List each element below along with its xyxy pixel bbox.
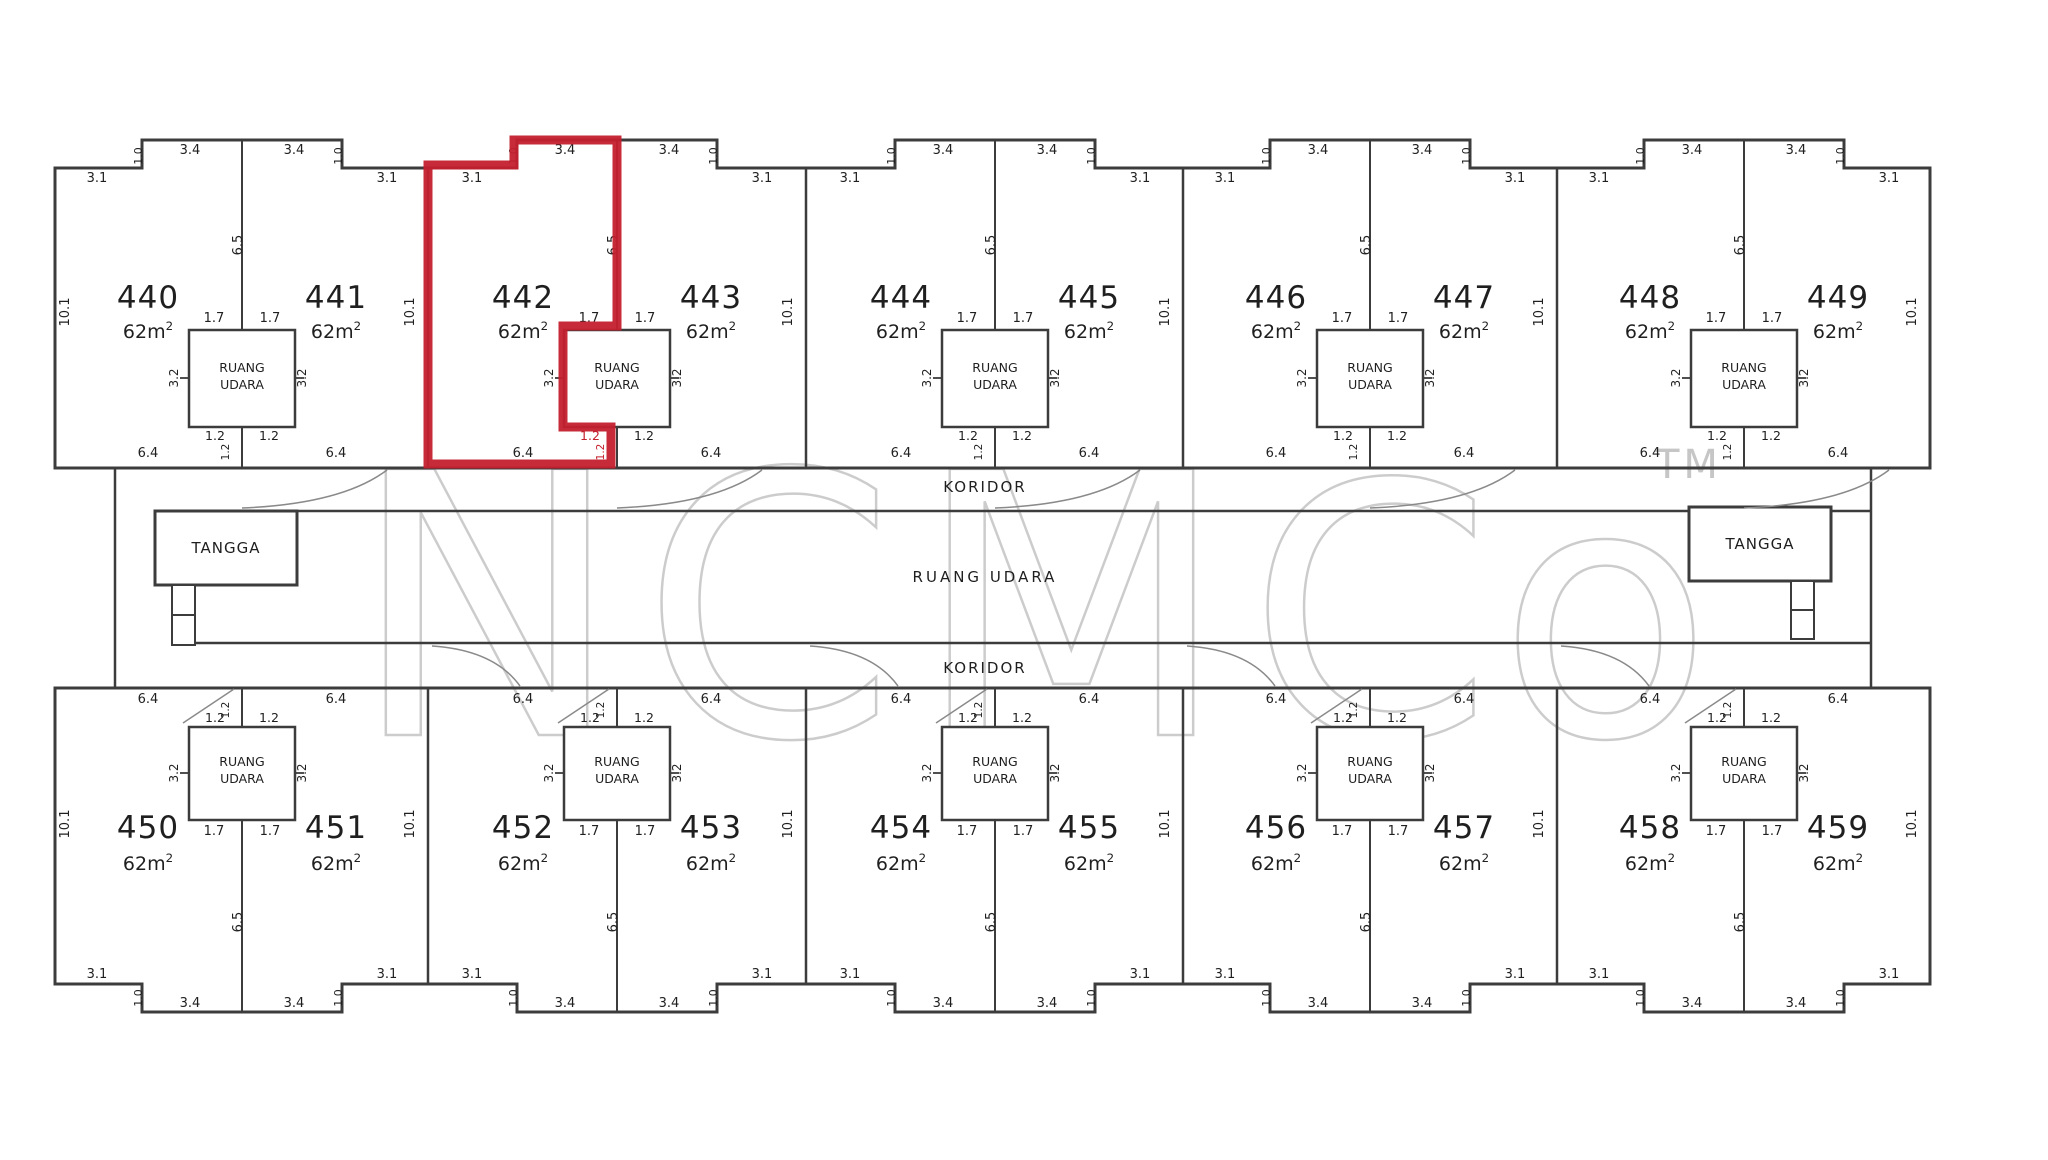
dim-label: 3.4 (933, 996, 954, 1011)
dim-unit-depth: 10.1 (1905, 298, 1920, 327)
watermark-tm: TM (1654, 442, 1722, 488)
dim-label: 1.7 (957, 311, 978, 326)
dim-label: 3.1 (1505, 967, 1526, 982)
dim-label: 3.1 (377, 171, 398, 186)
unit-number-445: 445 (1058, 280, 1120, 316)
dim-label: 6.4 (1640, 446, 1661, 461)
dim-label: 3.4 (1037, 143, 1058, 158)
ruang-udara-box-label: RUANG (594, 754, 639, 769)
dim-label: 1.0 (1460, 147, 1473, 165)
unit-area-456: 62m2 (1251, 851, 1301, 875)
dim-label: 1.0 (332, 147, 345, 165)
dim-label: 6.4 (513, 692, 534, 707)
dim-label: 3.1 (87, 967, 108, 982)
dim-label: 3.1 (1130, 967, 1151, 982)
dim-label: 3.4 (1412, 996, 1433, 1011)
dim-label: 1.7 (1706, 824, 1727, 839)
unit-number-458: 458 (1619, 810, 1681, 846)
dim-label: 1.0 (332, 989, 345, 1007)
dim-label: 3.4 (659, 143, 680, 158)
dim-label: 1.0 (1460, 989, 1473, 1007)
dim-label: 3.4 (1682, 996, 1703, 1011)
dim-label: 3.2 (1797, 763, 1811, 782)
ruang-udara-box-label: UDARA (595, 377, 639, 392)
dim-label: 3.1 (377, 967, 398, 982)
ruang-udara-box-label: UDARA (595, 771, 639, 786)
dim-label: 1.2 (1348, 444, 1360, 461)
dim-label: 3.1 (1505, 171, 1526, 186)
dim-unit-depth: 10.1 (403, 298, 418, 327)
dim-label: 1.0 (707, 989, 720, 1007)
dim-label: 1.0 (1260, 147, 1273, 165)
dim-label: 6.5 (984, 235, 999, 256)
dim-label: 6.5 (1733, 235, 1748, 256)
unit-number-451: 451 (305, 810, 367, 846)
floor-plan-page: NCMCoTM10.110.110.110.110.110.110.110.11… (0, 0, 2048, 1160)
dim-label: 3.2 (1295, 368, 1309, 387)
dim-label: 6.5 (984, 912, 999, 933)
unit-area-455: 62m2 (1064, 851, 1114, 875)
dim-label: 3.2 (1048, 763, 1062, 782)
dim-label: 6.4 (1266, 692, 1287, 707)
unit-area-459: 62m2 (1813, 851, 1863, 875)
dim-label: 3.1 (462, 171, 483, 186)
dim-label: 1.0 (1834, 147, 1847, 165)
unit-number-455: 455 (1058, 810, 1120, 846)
dim-label: 1.2 (1012, 428, 1032, 443)
dim-label: 1.0 (1260, 989, 1273, 1007)
dim-label: 1.7 (1706, 311, 1727, 326)
unit-number-453: 453 (680, 810, 742, 846)
dim-label: 3.2 (920, 763, 934, 782)
dim-label: 1.7 (1332, 824, 1353, 839)
unit-number-454: 454 (870, 810, 932, 846)
dim-label: 3.4 (555, 143, 576, 158)
dim-label: 3.2 (542, 763, 556, 782)
unit-area-452: 62m2 (498, 851, 548, 875)
dim-label: 3.2 (1423, 368, 1437, 387)
dim-label: 3.2 (295, 763, 309, 782)
unit-area-453: 62m2 (686, 851, 736, 875)
ruang-udara-box-label: UDARA (973, 771, 1017, 786)
dim-label: 1.7 (1388, 311, 1409, 326)
unit-number-443: 443 (680, 280, 742, 316)
ruang-udara-box-label: UDARA (220, 377, 264, 392)
dim-label: 1.7 (1762, 311, 1783, 326)
dim-label: 3.2 (670, 763, 684, 782)
dim-label: 6.4 (513, 446, 534, 461)
dim-label: 3.4 (1786, 143, 1807, 158)
dim-label: 3.4 (555, 996, 576, 1011)
dim-label: 3.2 (920, 368, 934, 387)
dim-label: 1.2 (1387, 710, 1407, 725)
dim-label: 1.2 (958, 428, 978, 443)
dim-label: 3.2 (1669, 368, 1683, 387)
dim-label: 1.2 (1333, 710, 1353, 725)
dim-label: 1.0 (1834, 989, 1847, 1007)
dim-label: 3.1 (1215, 171, 1236, 186)
dim-label: 3.2 (1295, 763, 1309, 782)
dim-label: 1.2 (1722, 444, 1734, 461)
dim-label: 3.4 (1682, 143, 1703, 158)
ruang-udara-box-label: RUANG (1721, 754, 1766, 769)
unit-area-458: 62m2 (1625, 851, 1675, 875)
unit-number-440: 440 (117, 280, 179, 316)
stairs-left-label: TANGGA (191, 539, 261, 557)
dim-label: 3.4 (1412, 143, 1433, 158)
unit-number-449: 449 (1807, 280, 1869, 316)
dim-unit-depth: 10.1 (781, 298, 796, 327)
dim-unit-depth: 10.1 (1158, 810, 1173, 839)
dim-label: 3.2 (670, 368, 684, 387)
dim-label: 1.7 (1388, 824, 1409, 839)
ruang-udara-box-label: UDARA (1722, 377, 1766, 392)
dim-label: 1.7 (1762, 824, 1783, 839)
dim-label: 3.4 (284, 996, 305, 1011)
dim-label: 6.4 (701, 446, 722, 461)
ruang-udara-center-label: RUANG UDARA (913, 568, 1058, 586)
dim-label: 1.0 (885, 989, 898, 1007)
dim-label: 1.0 (885, 147, 898, 165)
dim-label: 3.1 (1589, 967, 1610, 982)
dim-label: 1.2 (973, 444, 985, 461)
dim-label: 1.2 (220, 444, 232, 461)
dim-label: 3.1 (840, 967, 861, 982)
unit-area-441: 62m2 (311, 319, 361, 343)
dim-label: 1.7 (579, 824, 600, 839)
unit-number-442: 442 (492, 280, 554, 316)
dim-label: 6.4 (1454, 692, 1475, 707)
dim-unit-depth: 10.1 (1532, 810, 1547, 839)
dim-label: 1.7 (260, 311, 281, 326)
dim-label: 3.4 (1308, 143, 1329, 158)
dim-label: 1.0 (132, 989, 145, 1007)
unit-number-448: 448 (1619, 280, 1681, 316)
dim-label: 1.2 (259, 428, 279, 443)
dim-label: 6.4 (1640, 692, 1661, 707)
dim-unit-depth: 10.1 (1158, 298, 1173, 327)
dim-label: 3.4 (180, 996, 201, 1011)
dim-label: 3.4 (180, 143, 201, 158)
dim-label: 6.5 (1359, 912, 1374, 933)
dim-label: 1.7 (635, 311, 656, 326)
dim-label: 3.4 (284, 143, 305, 158)
dim-label: 6.4 (1266, 446, 1287, 461)
koridor-bottom-label: KORIDOR (943, 659, 1026, 677)
dim-label: 1.2 (205, 428, 225, 443)
unit-number-459: 459 (1807, 810, 1869, 846)
dim-label: 1.7 (957, 824, 978, 839)
dim-label: 1.2 (1761, 710, 1781, 725)
dim-label: 1.2 (1012, 710, 1032, 725)
dim-label: 6.5 (606, 912, 621, 933)
dim-label: 6.4 (138, 446, 159, 461)
unit-area-444: 62m2 (876, 319, 926, 343)
dim-unit-depth: 10.1 (1905, 810, 1920, 839)
unit-number-441: 441 (305, 280, 367, 316)
dim-label: 6.4 (326, 692, 347, 707)
unit-number-456: 456 (1245, 810, 1307, 846)
unit-area-450: 62m2 (123, 851, 173, 875)
dim-label: 6.4 (1828, 446, 1849, 461)
dim-label: 3.2 (1423, 763, 1437, 782)
dim-label: 3.1 (462, 967, 483, 982)
door-arc (1744, 470, 1889, 508)
dim-label: 1.2 (595, 444, 607, 461)
dim-label: 3.2 (295, 368, 309, 387)
ruang-udara-box-label: RUANG (972, 360, 1017, 375)
unit-area-447: 62m2 (1439, 319, 1489, 343)
ruang-udara-box-label: UDARA (220, 771, 264, 786)
dim-label: 3.2 (167, 763, 181, 782)
dim-label: 1.0 (507, 989, 520, 1007)
dim-label: 1.7 (204, 311, 225, 326)
dim-label: 3.2 (1669, 763, 1683, 782)
dim-label: 3.1 (1130, 171, 1151, 186)
dim-unit-depth: 10.1 (1532, 298, 1547, 327)
dim-unit-depth: 10.1 (58, 810, 73, 839)
dim-label: 1.7 (204, 824, 225, 839)
floor-plan-svg: NCMCoTM10.110.110.110.110.110.110.110.11… (0, 0, 2048, 1160)
dim-label: 1.2 (634, 428, 654, 443)
dim-label: 1.2 (634, 710, 654, 725)
stairs-right-label: TANGGA (1725, 535, 1795, 553)
dim-label: 1.0 (1634, 989, 1647, 1007)
dim-label: 3.1 (1215, 967, 1236, 982)
dim-label: 3.1 (1879, 171, 1900, 186)
dim-label: 3.2 (1048, 368, 1062, 387)
dim-label: 1.2 (1707, 710, 1727, 725)
ruang-udara-box-label: RUANG (1347, 360, 1392, 375)
dim-label: 6.5 (231, 235, 246, 256)
unit-number-446: 446 (1245, 280, 1307, 316)
unit-number-450: 450 (117, 810, 179, 846)
ruang-udara-box-label: UDARA (1348, 377, 1392, 392)
unit-area-457: 62m2 (1439, 851, 1489, 875)
ruang-udara-box-label: RUANG (219, 754, 264, 769)
dim-label: 1.2 (580, 710, 600, 725)
dim-label: 6.5 (1733, 912, 1748, 933)
dim-label: 1.7 (1013, 311, 1034, 326)
unit-area-448: 62m2 (1625, 319, 1675, 343)
dim-label: 6.4 (138, 692, 159, 707)
koridor-top-label: KORIDOR (943, 478, 1026, 496)
unit-area-445: 62m2 (1064, 319, 1114, 343)
dim-label: 3.2 (542, 368, 556, 387)
dim-label: 3.4 (659, 996, 680, 1011)
dim-label: 6.5 (1359, 235, 1374, 256)
unit-area-451: 62m2 (311, 851, 361, 875)
dim-label: 1.7 (635, 824, 656, 839)
unit-number-457: 457 (1433, 810, 1495, 846)
dim-label: 6.4 (1079, 692, 1100, 707)
dim-label: 1.2 (259, 710, 279, 725)
ruang-udara-box-label: RUANG (219, 360, 264, 375)
ruang-udara-box-label: RUANG (1347, 754, 1392, 769)
ruang-udara-box-label: UDARA (1348, 771, 1392, 786)
dim-label: 6.5 (231, 912, 246, 933)
ruang-udara-box-label: RUANG (1721, 360, 1766, 375)
dim-unit-depth: 10.1 (781, 810, 796, 839)
dim-label: 1.7 (260, 824, 281, 839)
dim-label: 1.2 (205, 710, 225, 725)
ruang-udara-box-label: UDARA (1722, 771, 1766, 786)
dim-label: 3.1 (752, 171, 773, 186)
dim-label: 1.0 (707, 147, 720, 165)
dim-label: 1.2 (1761, 428, 1781, 443)
dim-label: 6.4 (1454, 446, 1475, 461)
unit-area-443: 62m2 (686, 319, 736, 343)
dim-label: 6.4 (1079, 446, 1100, 461)
dim-label: 1.0 (1085, 147, 1098, 165)
dim-label: 6.4 (326, 446, 347, 461)
dim-label: 3.1 (1589, 171, 1610, 186)
dim-label: 3.1 (87, 171, 108, 186)
dim-label: 3.1 (1879, 967, 1900, 982)
unit-area-440: 62m2 (123, 319, 173, 343)
unit-number-444: 444 (870, 280, 932, 316)
unit-area-449: 62m2 (1813, 319, 1863, 343)
dim-label: 6.4 (1828, 692, 1849, 707)
dim-label: 1.0 (1085, 989, 1098, 1007)
dim-label: 3.2 (167, 368, 181, 387)
unit-number-452: 452 (492, 810, 554, 846)
dim-label: 1.0 (1634, 147, 1647, 165)
dim-label: 6.4 (891, 692, 912, 707)
dim-label: 1.2 (1333, 428, 1353, 443)
dim-label: 3.1 (752, 967, 773, 982)
dim-label: 6.4 (891, 446, 912, 461)
unit-number-447: 447 (1433, 280, 1495, 316)
dim-label: 1.2 (1387, 428, 1407, 443)
ruang-udara-box-label: RUANG (972, 754, 1017, 769)
dim-label: 3.4 (1037, 996, 1058, 1011)
unit-area-442: 62m2 (498, 319, 548, 343)
dim-label: 3.4 (1308, 996, 1329, 1011)
dim-label: 1.7 (1332, 311, 1353, 326)
dim-label: 3.1 (840, 171, 861, 186)
dim-label: 3.2 (1797, 368, 1811, 387)
dim-label: 1.7 (1013, 824, 1034, 839)
unit-area-454: 62m2 (876, 851, 926, 875)
dim-label: 6.4 (701, 692, 722, 707)
ruang-udara-box-label: RUANG (594, 360, 639, 375)
dim-unit-depth: 10.1 (58, 298, 73, 327)
dim-label: 3.4 (1786, 996, 1807, 1011)
ruang-udara-box-label: UDARA (973, 377, 1017, 392)
dim-label: 1.0 (132, 147, 145, 165)
dim-label: 1.2 (1707, 428, 1727, 443)
dim-label: 3.4 (933, 143, 954, 158)
dim-label: 1.2 (958, 710, 978, 725)
dim-unit-depth: 10.1 (403, 810, 418, 839)
unit-area-446: 62m2 (1251, 319, 1301, 343)
